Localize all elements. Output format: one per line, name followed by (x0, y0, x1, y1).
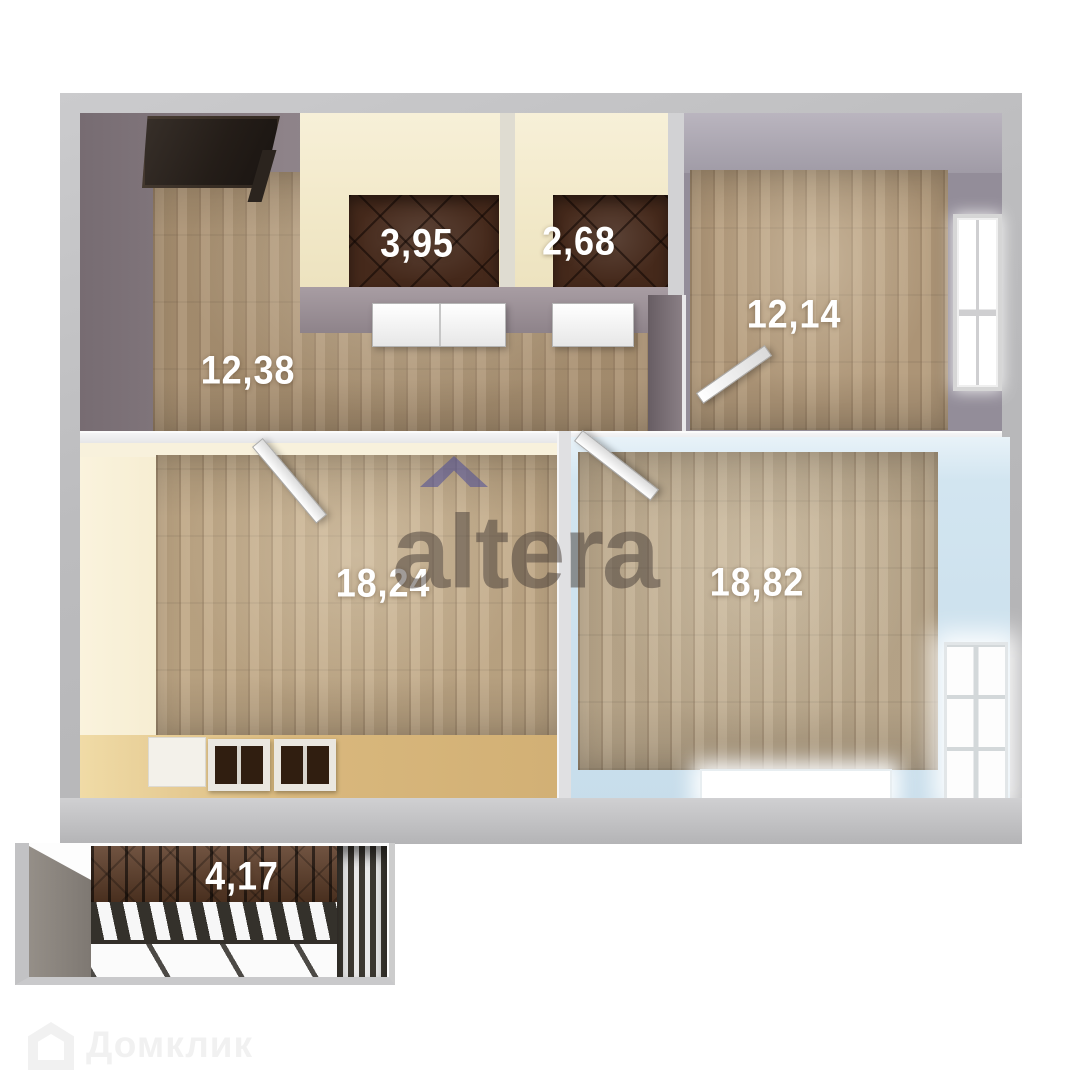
domklik-house-icon (28, 1022, 74, 1070)
toilet-door (552, 303, 634, 347)
area-label-toilet: 2,68 (542, 220, 616, 265)
area-label-living-right: 18,82 (710, 561, 805, 606)
bedroom-door-niche (648, 295, 686, 437)
bedroom-window (953, 214, 1002, 391)
balcony-floor (91, 940, 337, 977)
area-label-bedroom-top-right: 12,14 (747, 293, 842, 338)
domklik-watermark: Домклик (86, 1024, 253, 1066)
balcony-right-railing (337, 846, 387, 977)
living-right-french-window (944, 642, 1008, 802)
altera-watermark: altera (392, 494, 658, 613)
floor-plan: 12,38 3,95 2,68 12,14 18,24 18,82 4,17 a… (0, 0, 1080, 1080)
area-label-balcony: 4,17 (205, 855, 279, 900)
kitchen-window-1 (208, 739, 270, 791)
area-label-bathroom: 3,95 (380, 222, 454, 267)
apartment-bottom-wall (60, 798, 1022, 844)
room-bedroom-top-right-far-wall (684, 113, 1002, 173)
corridor-bedroom-wall (668, 113, 684, 295)
kitchen-window-2 (274, 739, 336, 791)
bathroom-door (372, 303, 506, 347)
kitchen-ledge (148, 737, 206, 787)
balcony-railing-bars (91, 902, 337, 940)
area-label-hallway: 12,38 (201, 349, 296, 394)
bottom-rooms-divider-wall (557, 431, 571, 805)
